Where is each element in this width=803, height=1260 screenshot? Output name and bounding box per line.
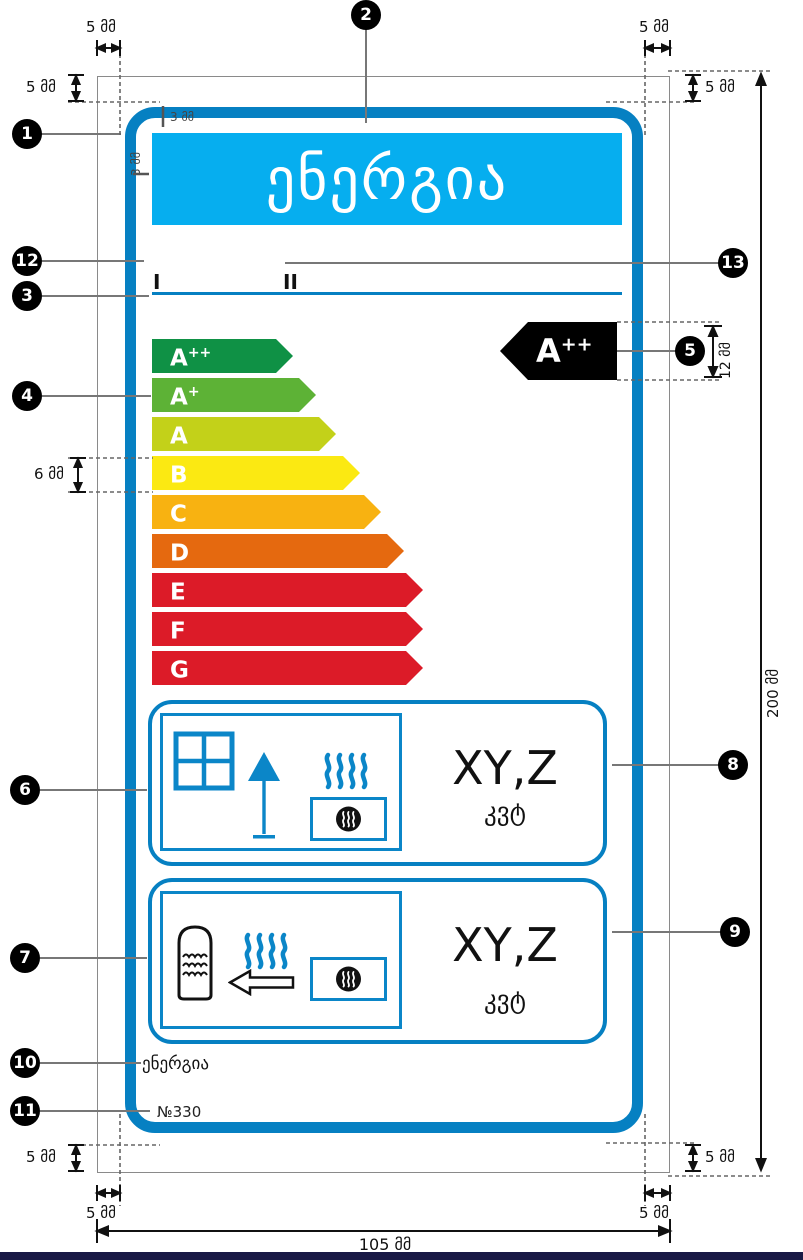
water-tank-icon — [173, 921, 217, 1002]
dim-top-right-h: 5 მმ — [639, 18, 669, 36]
dim-6mm: 6 მმ — [34, 465, 64, 483]
callout-11: 11 — [10, 1096, 40, 1126]
class-letter: A++ — [170, 336, 211, 376]
class-letter: F — [170, 609, 186, 649]
energy-class-arrow-e: E — [152, 573, 423, 607]
energy-class-arrow-d: D — [152, 534, 404, 568]
water-heating-unit: კვტ — [405, 985, 605, 1014]
dim-bottom-left-h: 5 მმ — [86, 1204, 116, 1222]
arrow-left-icon — [228, 969, 295, 996]
energy-class-arrow-a: A — [152, 417, 336, 451]
space-heating-value: XY,Z — [405, 741, 605, 795]
class-letter: D — [170, 531, 189, 571]
dim-top-left-v: 5 მმ — [26, 78, 56, 96]
page-edge-strip — [0, 1252, 803, 1260]
callout-5: 5 — [675, 336, 705, 366]
energy-class-arrow-f: F — [152, 612, 423, 646]
region-i-mark: I — [153, 270, 160, 294]
footer-regulation-number: №330 — [157, 1103, 201, 1121]
callout-7: 7 — [10, 943, 40, 973]
region-ii-mark: II — [283, 270, 298, 294]
dim-3mm-left: 3 მმ — [129, 134, 143, 176]
label-header-band: ენერგია — [152, 133, 622, 225]
class-letter: E — [170, 570, 186, 610]
class-letter: B — [170, 453, 188, 493]
lamp-icon — [247, 751, 281, 841]
water-heating-value: XY,Z — [405, 918, 605, 972]
callout-10: 10 — [10, 1048, 40, 1078]
callout-9: 9 — [720, 917, 750, 947]
energy-class-arrow-b: B — [152, 456, 360, 490]
dim-12mm: 12 მმ — [718, 325, 734, 379]
callout-4: 4 — [12, 381, 42, 411]
footer-energy-word: ენერგია — [142, 1054, 209, 1074]
class-letter: C — [170, 492, 187, 532]
burner-icon — [310, 957, 387, 1001]
indicator-letter: A++ — [536, 332, 593, 370]
dim-top-left-h: 5 მმ — [86, 18, 116, 36]
callout-1: 1 — [12, 119, 42, 149]
heat-waves-icon — [323, 752, 371, 792]
callout-3: 3 — [12, 281, 42, 311]
burner-icon — [310, 797, 387, 841]
label-title: ენერგია — [152, 133, 622, 225]
class-letter: A+ — [170, 375, 200, 415]
heat-waves-icon — [243, 932, 291, 972]
energy-class-arrow-a-plus: A+ — [152, 378, 316, 412]
dim-bottom-right-h: 5 მმ — [639, 1204, 669, 1222]
dim-top-right-v: 5 მმ — [705, 78, 735, 96]
callout-8: 8 — [718, 750, 748, 780]
callout-6: 6 — [10, 775, 40, 805]
energy-class-arrow-a-plus-plus: A++ — [152, 339, 293, 373]
class-letter: A — [170, 414, 188, 454]
dim-bottom-right-v: 5 მმ — [705, 1148, 735, 1166]
window-icon — [173, 731, 235, 791]
dim-bottom-left-v: 5 მმ — [26, 1148, 56, 1166]
callout-13: 13 — [718, 248, 748, 278]
dim-3mm-top: 3 მმ — [170, 110, 194, 124]
callout-12: 12 — [12, 246, 42, 276]
energy-class-arrow-c: C — [152, 495, 381, 529]
energy-class-arrow-g: G — [152, 651, 423, 685]
spec-diagram-page: ენერგია I II A++ A+ A B C D E F G A++ — [0, 0, 803, 1260]
dim-200mm: 200 მმ — [764, 642, 782, 718]
header-divider-line — [152, 292, 622, 295]
space-heating-unit: კვტ — [405, 797, 605, 826]
class-letter: G — [170, 648, 189, 688]
callout-2: 2 — [351, 0, 381, 30]
